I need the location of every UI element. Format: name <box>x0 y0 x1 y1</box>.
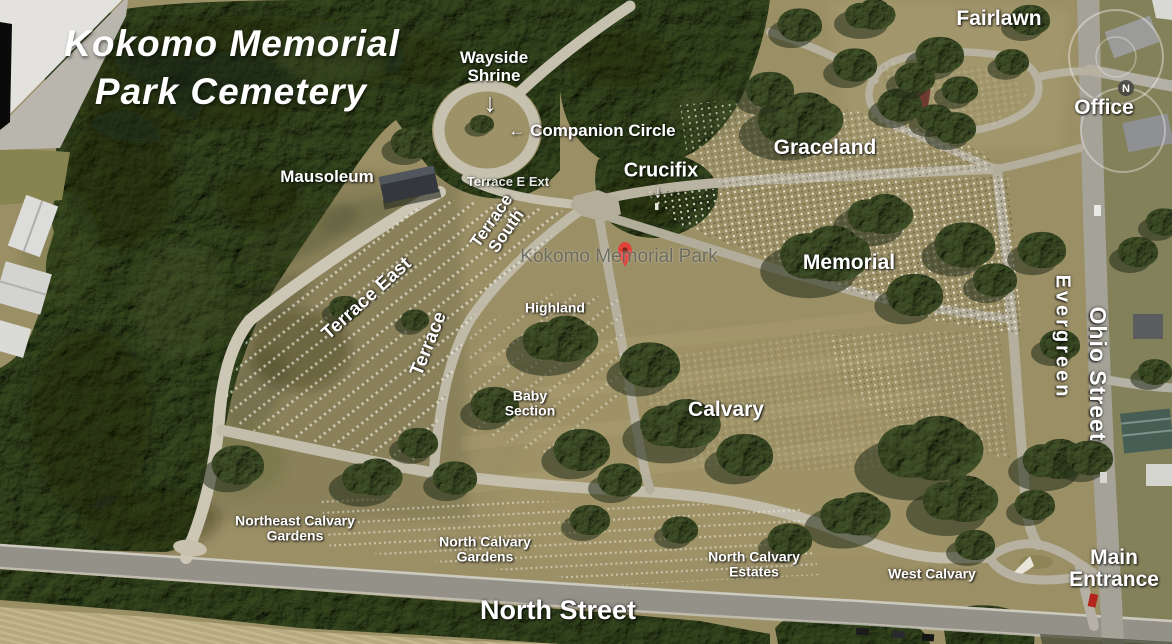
svg-text:N: N <box>1122 83 1130 95</box>
